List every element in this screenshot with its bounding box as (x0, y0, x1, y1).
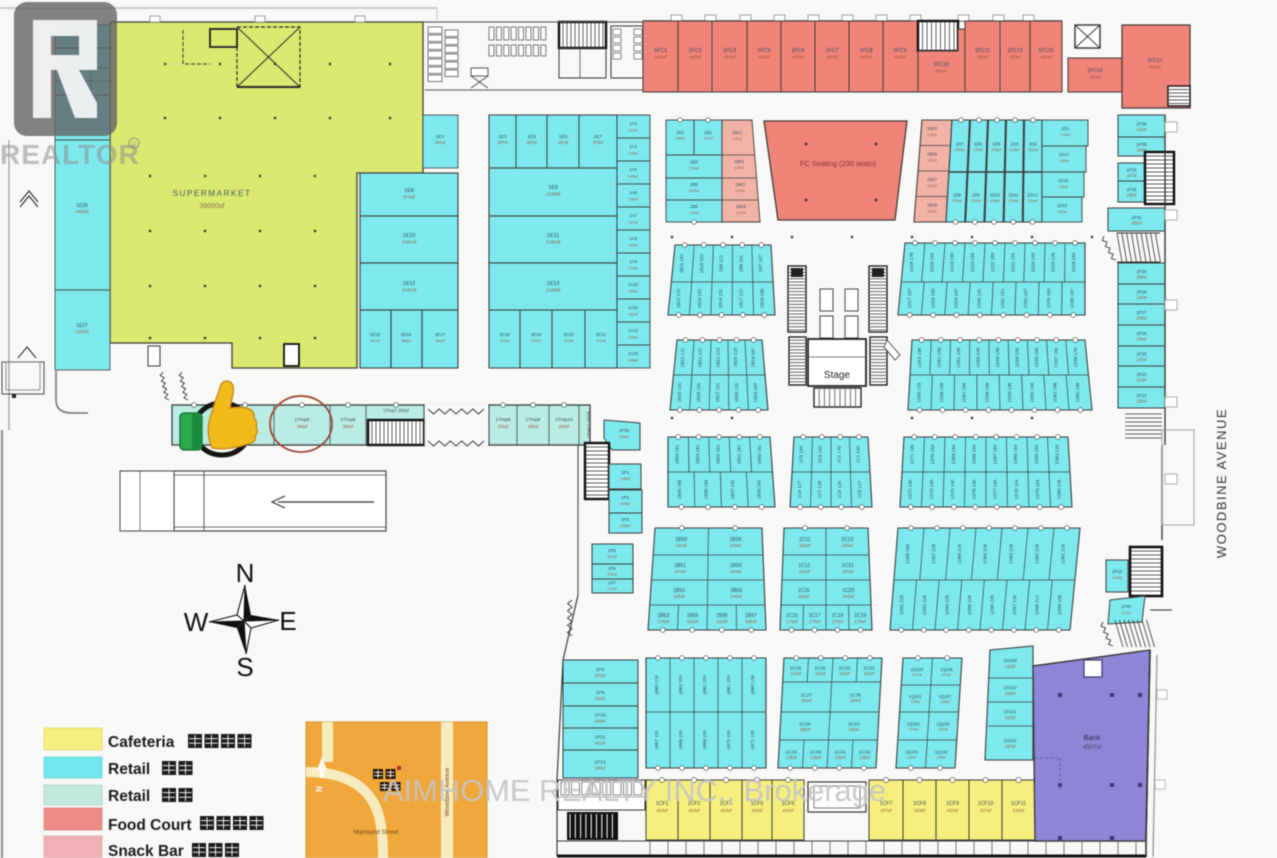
svg-text:864sf: 864sf (935, 68, 947, 73)
svg-text:226sf: 226sf (991, 147, 1002, 152)
svg-text:366sf: 366sf (343, 424, 354, 429)
svg-text:Food Court: Food Court (108, 817, 192, 834)
svg-text:1Q102: 1Q102 (907, 721, 920, 726)
svg-text:1D77 140: 1D77 140 (993, 479, 998, 499)
svg-text:1B3: 1B3 (690, 160, 699, 165)
svg-text:1P23: 1P23 (1136, 372, 1147, 377)
svg-text:165sf: 165sf (628, 243, 639, 248)
svg-text:226sf: 226sf (1009, 198, 1020, 203)
svg-text:1P35: 1P35 (1136, 142, 1147, 147)
svg-text:385sf: 385sf (297, 424, 308, 429)
svg-text:1D65 184: 1D65 184 (1034, 444, 1039, 464)
svg-text:1D68 184: 1D68 184 (972, 444, 977, 464)
svg-text:1D8: 1D8 (953, 192, 962, 197)
svg-text:1D29 197: 1D29 197 (954, 288, 959, 308)
svg-text:1A7: 1A7 (629, 213, 637, 218)
svg-text:1D36 176: 1D36 176 (1073, 347, 1078, 367)
svg-text:500sf: 500sf (655, 55, 667, 61)
svg-text:244sf: 244sf (730, 569, 742, 574)
svg-text:1D24 155: 1D24 155 (950, 252, 955, 272)
svg-text:1D20 155: 1D20 155 (1030, 252, 1035, 272)
svg-text:220sf: 220sf (1136, 357, 1147, 362)
svg-text:138sf: 138sf (1126, 193, 1137, 198)
svg-text:1E20: 1E20 (563, 332, 574, 337)
svg-text:1Tmp9: 1Tmp9 (526, 417, 541, 423)
svg-text:256sf: 256sf (528, 424, 539, 429)
svg-text:203sf: 203sf (607, 572, 617, 577)
svg-text:420sf: 420sf (500, 338, 511, 343)
svg-text:4507sf: 4507sf (1083, 745, 1101, 751)
svg-text:1037sf: 1037sf (402, 288, 417, 294)
svg-text:1D80 128: 1D80 128 (1056, 479, 1061, 499)
svg-text:265sf: 265sf (620, 501, 631, 506)
svg-text:1C5 144: 1C5 144 (799, 445, 804, 463)
svg-text:135sf: 135sf (786, 755, 798, 760)
svg-text:460sf: 460sf (792, 55, 804, 61)
svg-text:226sf: 226sf (971, 198, 982, 203)
svg-text:1B65 216: 1B65 216 (654, 675, 659, 695)
svg-text:1Q106: 1Q106 (937, 721, 950, 726)
svg-text:1C6 127: 1C6 127 (797, 480, 802, 498)
svg-text:184sf: 184sf (801, 698, 813, 703)
svg-text:298sf: 298sf (1136, 275, 1147, 280)
svg-text:135sf: 135sf (859, 755, 871, 760)
svg-text:379sf: 379sf (593, 140, 604, 145)
svg-text:1FC15: 1FC15 (1038, 48, 1054, 54)
svg-text:214sf: 214sf (1136, 378, 1147, 383)
svg-text:1P36: 1P36 (1136, 122, 1147, 127)
svg-text:387sf: 387sf (558, 140, 569, 145)
svg-text:1D62 196: 1D62 196 (1075, 382, 1080, 402)
svg-text:460sf: 460sf (724, 55, 736, 61)
svg-text:1D55 225: 1D55 225 (916, 382, 921, 402)
svg-text:1Tmp8: 1Tmp8 (496, 417, 511, 423)
svg-text:244sf: 244sf (730, 543, 742, 548)
svg-text:39000sf: 39000sf (200, 203, 225, 210)
svg-text:1A11: 1A11 (628, 305, 638, 310)
svg-text:1FC16: 1FC16 (1087, 68, 1103, 74)
svg-text:170sf: 170sf (628, 266, 639, 271)
svg-text:1D93 226: 1D93 226 (944, 595, 949, 615)
svg-text:226sf: 226sf (1028, 147, 1039, 152)
svg-text:1A5: 1A5 (629, 167, 637, 172)
svg-text:387sf: 387sf (497, 140, 508, 145)
svg-text:1Tmp6: 1Tmp6 (341, 417, 356, 423)
svg-text:1P26: 1P26 (1136, 331, 1147, 336)
svg-text:174sf: 174sf (607, 586, 617, 591)
svg-text:1D12: 1D12 (1027, 192, 1038, 197)
svg-text:1Tmp10: 1Tmp10 (555, 417, 573, 423)
svg-text:442sf: 442sf (782, 808, 794, 813)
svg-text:1Q104: 1Q104 (935, 749, 948, 754)
svg-text:1B1: 1B1 (704, 130, 712, 135)
svg-text:1B22 122: 1B22 122 (698, 347, 703, 367)
svg-text:181sf: 181sf (799, 569, 811, 574)
svg-text:1C1 143: 1C1 143 (856, 445, 861, 463)
svg-text:176sf: 176sf (832, 619, 844, 624)
svg-text:REALTOR: REALTOR (0, 139, 140, 170)
svg-text:1D15: 1D15 (1057, 203, 1068, 208)
svg-text:150sf: 150sf (628, 335, 639, 340)
svg-text:1B36 193: 1B36 193 (704, 479, 709, 499)
svg-text:1D83 226: 1D83 226 (1009, 544, 1014, 564)
svg-text:226sf: 226sf (955, 147, 966, 152)
svg-text:1Tmp11 160sf: 1Tmp11 160sf (586, 411, 591, 438)
svg-text:133sf: 133sf (628, 151, 639, 156)
svg-text:142sf: 142sf (927, 209, 938, 214)
svg-text:1A8: 1A8 (629, 236, 637, 241)
svg-text:1FC3: 1FC3 (723, 48, 736, 54)
svg-text:1D52 156: 1D52 156 (936, 347, 941, 367)
svg-text:182sf: 182sf (628, 312, 639, 317)
svg-text:1D30 141: 1D30 141 (977, 288, 982, 308)
svg-text:1E16: 1E16 (401, 332, 412, 337)
svg-text:1D10: 1D10 (989, 192, 1000, 197)
svg-text:1FC10: 1FC10 (933, 62, 949, 68)
svg-text:1E19: 1E19 (531, 332, 542, 337)
svg-text:158sf: 158sf (628, 358, 639, 363)
svg-text:1B69 204: 1B69 204 (702, 730, 707, 750)
svg-text:15K2: 15K2 (734, 159, 745, 164)
svg-text:255sf: 255sf (559, 424, 570, 429)
svg-text:1D33 153: 1D33 153 (1046, 288, 1051, 308)
svg-text:146sf: 146sf (628, 174, 639, 179)
svg-text:225sf: 225sf (1136, 399, 1147, 404)
svg-text:200sf: 200sf (798, 594, 810, 599)
svg-text:420sf: 420sf (531, 338, 542, 343)
svg-text:1FC11: 1FC11 (975, 48, 990, 54)
svg-text:1P28: 1P28 (1136, 290, 1147, 295)
svg-text:1Tmp5: 1Tmp5 (295, 417, 310, 423)
svg-text:114sf: 114sf (839, 671, 850, 676)
svg-text:437sf: 437sf (880, 808, 892, 813)
svg-text:252sf: 252sf (595, 696, 606, 701)
svg-text:1D76 140: 1D76 140 (971, 479, 976, 499)
svg-text:AIMHOME REALTY INC., Brokerage: AIMHOME REALTY INC., Brokerage (383, 773, 886, 808)
svg-text:420sf: 420sf (564, 338, 575, 343)
svg-text:128sf: 128sf (911, 700, 921, 704)
svg-text:1B2: 1B2 (676, 130, 684, 135)
svg-text:1P7: 1P7 (608, 581, 616, 586)
svg-text:135sf: 135sf (927, 158, 938, 163)
svg-text:256sf: 256sf (498, 424, 509, 429)
svg-text:234sf: 234sf (689, 165, 700, 170)
svg-text:1Q101: 1Q101 (909, 694, 922, 699)
svg-text:1P3: 1P3 (621, 517, 629, 522)
svg-text:411sf: 411sf (596, 338, 606, 343)
svg-text:147sf: 147sf (736, 210, 747, 215)
svg-text:114sf: 114sf (864, 671, 875, 676)
svg-text:1A15: 1A15 (628, 351, 639, 356)
svg-text:1D91 226: 1D91 226 (899, 595, 904, 615)
svg-text:1D86 226: 1D86 226 (957, 544, 962, 564)
svg-text:387sf: 387sf (526, 140, 537, 145)
svg-text:1FC6: 1FC6 (791, 48, 804, 54)
svg-text:1P31: 1P31 (1131, 215, 1142, 220)
svg-text:1B23 122: 1B23 122 (680, 347, 685, 367)
svg-text:1B12 172: 1B12 172 (676, 288, 681, 308)
svg-text:1C7 128: 1C7 128 (817, 480, 822, 498)
svg-text:1D18 165: 1D18 165 (1071, 252, 1076, 272)
svg-text:1D32 157: 1D32 157 (1023, 288, 1028, 308)
svg-text:1D88 290: 1D88 290 (905, 544, 910, 564)
svg-text:1FC7: 1FC7 (825, 48, 838, 54)
svg-text:215sf: 215sf (1136, 127, 1147, 132)
svg-text:1D9: 1D9 (972, 192, 981, 197)
svg-text:WOODBINE AVENUE: WOODBINE AVENUE (1214, 408, 1229, 558)
svg-text:1D98 212: 1D98 212 (1035, 595, 1040, 615)
svg-text:114sf: 114sf (790, 671, 801, 676)
svg-text:192sf: 192sf (687, 619, 699, 624)
svg-text:200sf: 200sf (843, 594, 855, 599)
svg-text:192sf: 192sf (716, 619, 728, 624)
svg-text:1B34 181: 1B34 181 (695, 444, 700, 464)
svg-text:1B66 204: 1B66 204 (678, 730, 683, 750)
svg-text:1A6: 1A6 (629, 190, 637, 195)
svg-text:1D5: 1D5 (992, 141, 1001, 146)
svg-text:1D71 196: 1D71 196 (909, 444, 914, 464)
svg-text:1D6: 1D6 (974, 141, 983, 146)
svg-text:1B60 139: 1B60 139 (750, 675, 755, 695)
svg-text:1FC9: 1FC9 (893, 48, 906, 54)
svg-text:1B71 195: 1B71 195 (750, 730, 755, 750)
svg-text:1P45: 1P45 (1121, 604, 1131, 609)
svg-text:1D28 155: 1D28 155 (930, 288, 935, 308)
svg-text:1E18: 1E18 (499, 332, 510, 337)
svg-text:1Q100: 1Q100 (911, 667, 924, 672)
svg-text:1D17: 1D17 (1059, 152, 1070, 157)
svg-text:1225sf: 1225sf (546, 288, 561, 294)
svg-text:1B10 151: 1B10 151 (699, 253, 704, 273)
svg-text:1D57 156: 1D57 156 (962, 382, 967, 402)
svg-text:1B5: 1B5 (690, 182, 699, 187)
svg-text:1B38 191: 1B38 191 (757, 479, 762, 499)
svg-text:1B67 181: 1B67 181 (654, 730, 659, 750)
svg-text:1B7 137: 1B7 137 (758, 255, 763, 273)
svg-text:433sf: 433sf (688, 808, 700, 813)
svg-text:972sf: 972sf (403, 195, 415, 201)
svg-text:FC Seating (200 seats): FC Seating (200 seats) (800, 159, 876, 168)
svg-text:1CF8: 1CF8 (913, 801, 926, 807)
svg-text:1B17 122: 1B17 122 (739, 288, 744, 308)
svg-text:1E12: 1E12 (403, 281, 416, 287)
svg-text:1FC1: 1FC1 (654, 48, 667, 54)
svg-text:1P5: 1P5 (608, 548, 616, 553)
svg-text:1C2 143: 1C2 143 (837, 445, 842, 463)
svg-text:15K1: 15K1 (732, 130, 743, 135)
svg-text:1E17: 1E17 (435, 332, 446, 337)
svg-text:1B6: 1B6 (690, 204, 699, 209)
svg-text:1E10: 1E10 (403, 233, 416, 239)
svg-text:267sf: 267sf (1005, 744, 1016, 749)
svg-text:421sf: 421sf (370, 338, 381, 343)
svg-text:1B15 151: 1B15 151 (697, 288, 702, 308)
svg-text:114sf: 114sf (815, 671, 826, 676)
svg-text:460sf: 460sf (758, 55, 770, 61)
svg-text:1D66 184: 1D66 184 (1013, 444, 1018, 464)
svg-text:1P22: 1P22 (1136, 393, 1147, 398)
svg-text:1P2: 1P2 (621, 495, 630, 500)
svg-text:1A3: 1A3 (629, 144, 637, 149)
svg-text:15K6: 15K6 (927, 203, 938, 208)
svg-text:1D59 136: 1D59 136 (1007, 382, 1012, 402)
svg-text:253sf: 253sf (595, 673, 606, 678)
svg-text:1Q105: 1Q105 (940, 667, 953, 672)
svg-text:157sf: 157sf (1126, 173, 1137, 178)
svg-text:135sf: 135sf (936, 756, 946, 760)
svg-text:1D111: 1D111 (1004, 709, 1017, 714)
svg-text:265sf: 265sf (620, 523, 631, 528)
svg-text:1B28 131: 1B28 131 (734, 382, 739, 402)
svg-text:1D39 156: 1D39 156 (1014, 347, 1019, 367)
svg-text:1D26 178: 1D26 178 (909, 252, 914, 272)
svg-text:N: N (236, 558, 255, 588)
svg-text:15K3: 15K3 (735, 182, 746, 187)
svg-text:1D63 128: 1D63 128 (1055, 444, 1060, 464)
svg-text:1B18 180: 1B18 180 (760, 288, 765, 308)
svg-text:1D79 154: 1D79 154 (1035, 479, 1040, 499)
svg-text:1P32: 1P32 (1126, 187, 1137, 192)
svg-text:1B21 123: 1B21 123 (715, 347, 720, 367)
svg-text:15K9: 15K9 (927, 126, 938, 131)
svg-text:1D19 126: 1D19 126 (1051, 252, 1056, 272)
svg-text:122sf: 122sf (942, 673, 952, 677)
svg-text:122sf: 122sf (628, 128, 639, 133)
svg-text:420sf: 420sf (1089, 74, 1101, 79)
svg-text:862sf: 862sf (1149, 64, 1161, 69)
svg-text:Retail: Retail (108, 788, 150, 805)
svg-text:1B63 204: 1B63 204 (678, 675, 683, 695)
svg-text:1A9: 1A9 (629, 259, 637, 264)
svg-text:1E26: 1E26 (76, 203, 88, 209)
svg-text:184sf: 184sf (850, 698, 862, 703)
svg-text:1B32 181: 1B32 181 (716, 444, 721, 464)
svg-text:1FC17: 1FC17 (1147, 58, 1163, 64)
svg-text:1CF10: 1CF10 (978, 801, 994, 807)
svg-text:198sf: 198sf (619, 434, 630, 439)
svg-text:135sf: 135sf (810, 755, 822, 760)
svg-text:156sf: 156sf (1059, 158, 1070, 163)
svg-text:263sf: 263sf (595, 718, 606, 723)
svg-text:Markland Street: Markland Street (353, 829, 398, 836)
svg-text:1C8 120: 1C8 120 (837, 480, 842, 498)
svg-text:1D37 156: 1D37 156 (1053, 347, 1058, 367)
svg-text:1B19 187: 1B19 187 (751, 347, 756, 367)
svg-text:1D96 226: 1D96 226 (989, 595, 994, 615)
svg-text:132sf: 132sf (927, 132, 938, 137)
svg-text:1D49 156: 1D49 156 (995, 347, 1000, 367)
svg-text:1D60 156: 1D60 156 (1030, 382, 1035, 402)
svg-text:212sf: 212sf (1121, 610, 1132, 615)
svg-text:1CF11: 1CF11 (1011, 801, 1026, 807)
svg-text:1B33 181: 1B33 181 (674, 444, 679, 464)
svg-text:1D82 226: 1D82 226 (1035, 544, 1040, 564)
svg-text:518sf: 518sf (1013, 808, 1025, 813)
svg-text:176sf: 176sf (809, 619, 821, 624)
svg-text:248sf: 248sf (1136, 295, 1147, 300)
svg-text:1B37 192: 1B37 192 (730, 479, 735, 499)
svg-text:1P33: 1P33 (1126, 168, 1137, 173)
svg-text:1P29: 1P29 (1136, 269, 1147, 274)
svg-text:244sf: 244sf (676, 543, 688, 548)
svg-text:N: N (315, 786, 324, 792)
svg-text:Bank: Bank (1083, 733, 1100, 742)
svg-text:1FC12: 1FC12 (1007, 48, 1023, 54)
svg-text:1B8 151: 1B8 151 (738, 255, 743, 273)
svg-text:1D31 151: 1D31 151 (1000, 288, 1005, 308)
svg-text:1D7: 1D7 (956, 141, 965, 146)
svg-text:1D99 226: 1D99 226 (1057, 595, 1062, 615)
svg-text:125sf: 125sf (734, 165, 745, 170)
svg-text:244sf: 244sf (674, 569, 686, 574)
svg-text:165sf: 165sf (628, 289, 639, 294)
svg-text:1D69 184: 1D69 184 (951, 444, 956, 464)
svg-text:226sf: 226sf (1010, 147, 1021, 152)
svg-text:1D67 184: 1D67 184 (992, 444, 997, 464)
svg-text:W: W (184, 607, 209, 637)
svg-text:129sf: 129sf (940, 700, 950, 704)
svg-text:1D109: 1D109 (1003, 658, 1017, 663)
svg-text:1D110: 1D110 (1003, 685, 1017, 690)
svg-text:1D72 140: 1D72 140 (908, 479, 913, 499)
svg-text:124sf: 124sf (909, 728, 919, 732)
svg-text:1D56 156: 1D56 156 (939, 382, 944, 402)
svg-text:1FC8: 1FC8 (859, 48, 872, 54)
svg-text:245sf: 245sf (730, 594, 742, 599)
svg-text:185sf: 185sf (799, 727, 811, 732)
svg-text:433sf: 433sf (720, 808, 732, 813)
svg-text:E: E (279, 606, 296, 636)
svg-text:1D53 196: 1D53 196 (917, 347, 922, 367)
svg-text:1E8: 1E8 (404, 188, 414, 194)
svg-text:1239sf: 1239sf (546, 192, 561, 198)
svg-text:132sf: 132sf (732, 136, 743, 141)
svg-text:185sf: 185sf (848, 727, 860, 732)
svg-text:239sf: 239sf (1136, 316, 1147, 321)
svg-text:1E21: 1E21 (596, 332, 607, 337)
svg-text:1D23 155: 1D23 155 (970, 252, 975, 272)
svg-text:15K8: 15K8 (927, 152, 938, 157)
svg-text:166sf: 166sf (842, 543, 854, 548)
svg-text:1D92 226: 1D92 226 (922, 595, 927, 615)
svg-text:1Q103: 1Q103 (905, 749, 918, 754)
svg-text:1E11: 1E11 (547, 233, 559, 239)
svg-text:226sf: 226sf (973, 147, 984, 152)
svg-text:1D35 197: 1D35 197 (1069, 288, 1074, 308)
svg-text:176sf: 176sf (855, 619, 867, 624)
svg-text:1D85 226: 1D85 226 (983, 544, 988, 564)
svg-text:1B25 131: 1B25 131 (677, 382, 682, 402)
svg-text:176sf: 176sf (786, 619, 798, 624)
svg-text:1E9: 1E9 (548, 185, 558, 191)
svg-text:1D1: 1D1 (1061, 126, 1070, 131)
svg-text:1P30: 1P30 (619, 428, 630, 433)
svg-text:1D2: 1D2 (1029, 141, 1038, 146)
svg-text:SUPERMARKET: SUPERMARKET (173, 189, 252, 198)
svg-text:223sf: 223sf (1005, 715, 1016, 720)
svg-text:130sf: 130sf (938, 728, 948, 732)
svg-text:433sf: 433sf (914, 808, 926, 813)
svg-text:Stage: Stage (824, 370, 851, 381)
svg-text:138sf: 138sf (1058, 184, 1069, 189)
svg-text:1D75 140: 1D75 140 (950, 479, 955, 499)
svg-text:1B26 131: 1B26 131 (696, 382, 701, 402)
svg-text:143sf: 143sf (1057, 209, 1068, 214)
svg-text:433sf: 433sf (751, 808, 763, 813)
svg-text:386sf: 386sf (595, 765, 606, 770)
svg-text:1Tmp7 255sf: 1Tmp7 255sf (383, 408, 409, 413)
svg-text:Retail: Retail (108, 761, 150, 778)
